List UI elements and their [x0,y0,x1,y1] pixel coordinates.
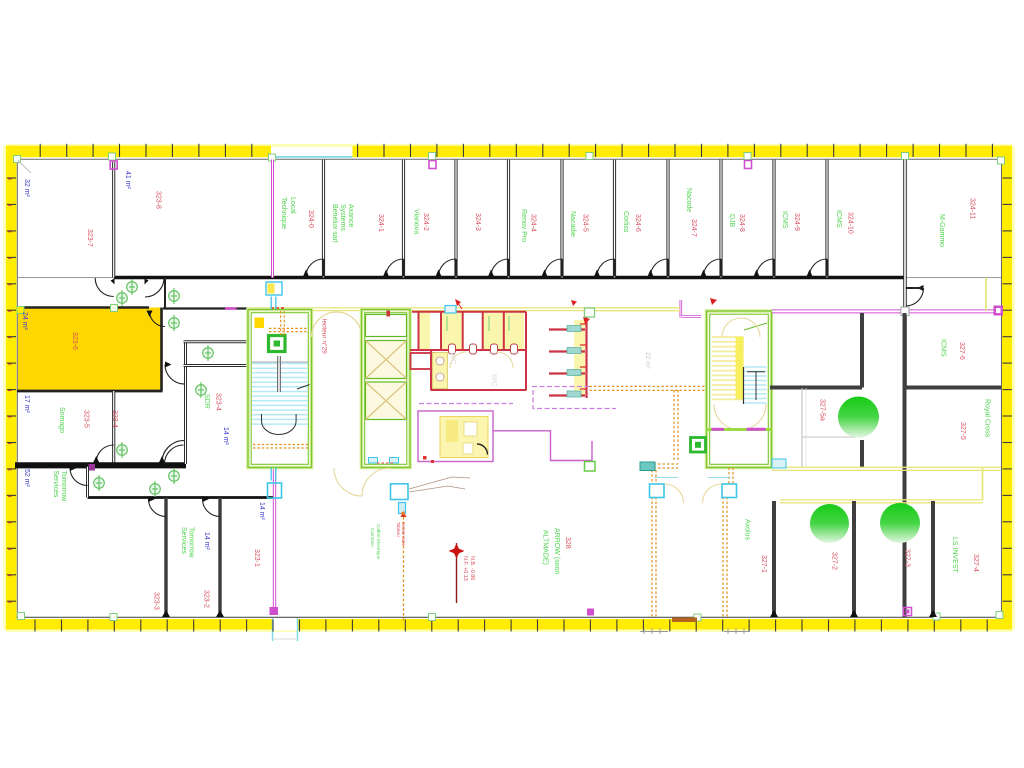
svg-text:324-1: 324-1 [377,214,384,232]
svg-text:Corliss: Corliss [622,211,629,233]
svg-text:Coffret Electrique: Coffret Electrique [376,524,381,560]
svg-text:14 m²: 14 m² [203,532,210,551]
svg-text:14 m²: 14 m² [258,502,265,521]
svg-text:Services: Services [180,527,187,554]
svg-text:327-3: 327-3 [904,549,911,567]
svg-text:52 m²: 52 m² [23,469,30,488]
svg-text:24 m²: 24 m² [21,312,28,331]
svg-text:324-8: 324-8 [738,214,745,232]
svg-text:323-8: 323-8 [155,191,162,209]
svg-text:DJB: DJB [728,214,735,228]
svg-text:Divisionnaire: Divisionnaire [401,522,406,547]
svg-text:SDR: SDR [203,394,210,409]
svg-text:lecteur n°29: lecteur n°29 [321,319,329,354]
svg-text:Nacadie: Nacadie [569,211,576,237]
svg-text:324-5: 324-5 [582,214,589,232]
svg-text:Tomorrow: Tomorrow [60,471,67,503]
svg-text:N.B. -0.86: N.B. -0.86 [469,556,475,580]
svg-text:Benelux sarl: Benelux sarl [331,204,338,243]
svg-text:323-2: 323-2 [203,590,210,608]
svg-text:Tableau: Tableau [396,522,401,537]
svg-text:324-0: 324-0 [307,210,314,228]
svg-text:328: 328 [564,537,571,549]
svg-text:Tomorrow: Tomorrow [188,527,195,559]
svg-text:Commun: Commun [370,528,375,547]
svg-text:WC: WC [490,374,499,387]
svg-text:323-3: 323-3 [153,592,160,610]
svg-text:324-4: 324-4 [530,214,537,232]
svg-text:324-7: 324-7 [690,219,697,237]
svg-text:ARROW (soon: ARROW (soon [553,528,560,574]
svg-text:327-2: 327-2 [831,552,838,570]
svg-text:327-5: 327-5 [959,422,966,440]
svg-text:Vianova: Vianova [413,209,420,234]
svg-text:ICMS: ICMS [781,211,788,229]
svg-text:323-6: 323-6 [71,332,78,350]
svg-text:323-7: 323-7 [86,229,93,247]
svg-text:17 m²: 17 m² [23,395,30,414]
svg-text:N.F. +0.13: N.F. +0.13 [462,556,468,581]
svg-text:324-11: 324-11 [969,198,976,219]
svg-text:Systems: Systems [339,204,346,231]
svg-text:Nacode: Nacode [685,188,692,212]
svg-text:ICMS: ICMS [835,210,842,228]
svg-text:Somago: Somago [58,407,65,433]
svg-text:LS INVEST: LS INVEST [951,537,958,574]
svg-text:ALTMADE): ALTMADE) [542,530,549,565]
svg-text:14 m²: 14 m² [222,427,229,446]
svg-text:327-4: 327-4 [972,554,979,572]
svg-text:324-3: 324-3 [474,213,481,231]
svg-text:323-4: 323-4 [111,410,118,428]
svg-text:M-Gammo: M-Gammo [938,214,945,247]
svg-text:Technique: Technique [280,197,287,229]
svg-text:ICMS: ICMS [940,339,947,357]
svg-text:Axolus: Axolus [744,519,751,541]
svg-text:Royal Cross: Royal Cross [984,399,991,438]
svg-text:Axance: Axance [347,204,354,227]
svg-text:324-9: 324-9 [793,213,800,231]
svg-text:22 m²: 22 m² [644,352,651,369]
svg-text:Local: Local [289,197,296,214]
svg-text:327-5a: 327-5a [819,399,826,421]
svg-text:WC: WC [449,352,458,365]
svg-text:32 m²: 32 m² [23,179,30,198]
svg-text:324-10: 324-10 [847,212,854,234]
svg-text:327-1: 327-1 [760,555,767,573]
svg-text:324-2: 324-2 [422,213,429,231]
svg-text:323-5: 323-5 [83,410,90,428]
svg-text:327-6: 327-6 [958,342,965,360]
svg-text:Renov Pro: Renov Pro [520,209,527,242]
svg-text:Services: Services [52,471,59,498]
svg-text:323-1: 323-1 [253,549,260,567]
svg-text:323-4: 323-4 [215,393,222,411]
svg-text:324-6: 324-6 [634,214,641,232]
svg-text:41 m²: 41 m² [124,171,131,190]
